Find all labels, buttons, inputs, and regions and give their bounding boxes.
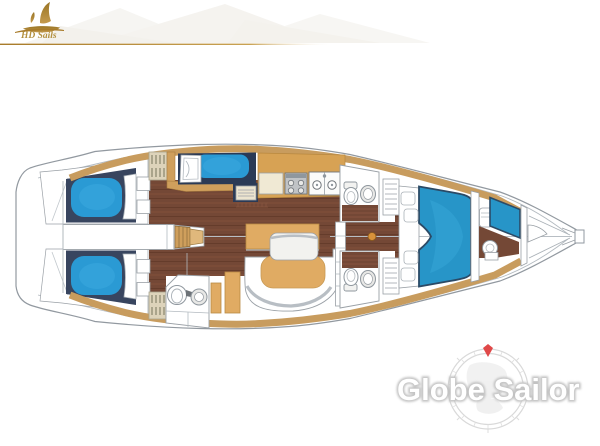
- svg-text:HD Sails: HD Sails: [20, 31, 57, 41]
- svg-text:Globe Sailor: Globe Sailor: [397, 372, 580, 407]
